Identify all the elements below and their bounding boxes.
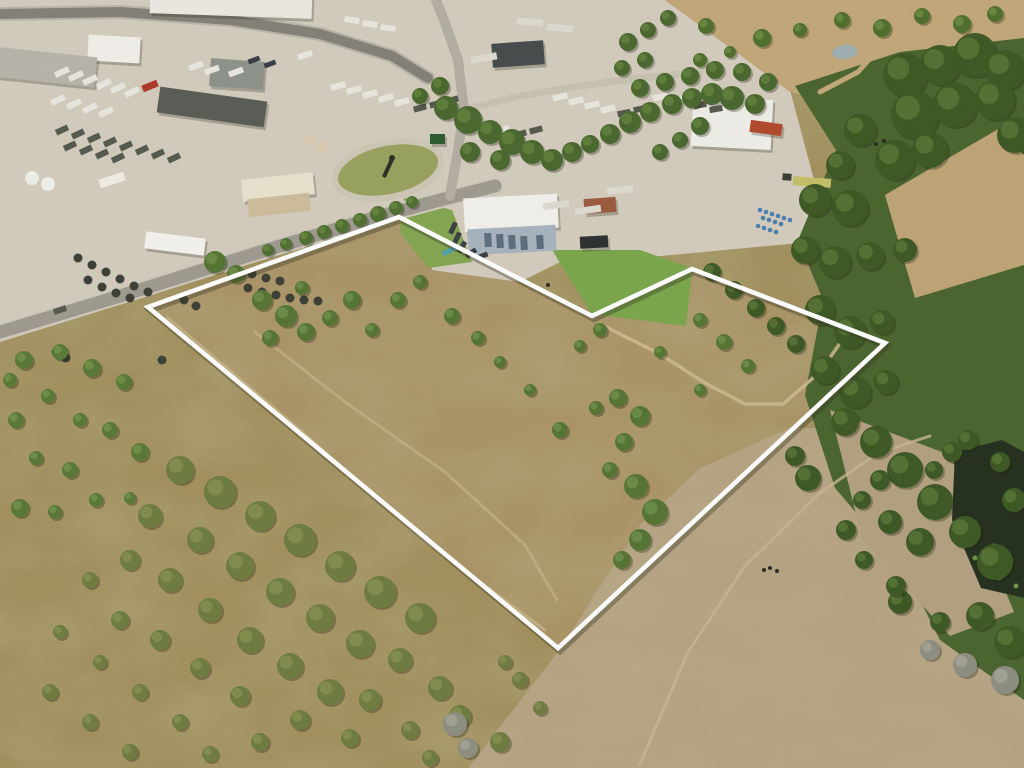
photo-grain-overlay — [0, 0, 1024, 768]
aerial-photo-land-parcel — [0, 0, 1024, 768]
aerial-scene-canvas — [0, 0, 1024, 768]
